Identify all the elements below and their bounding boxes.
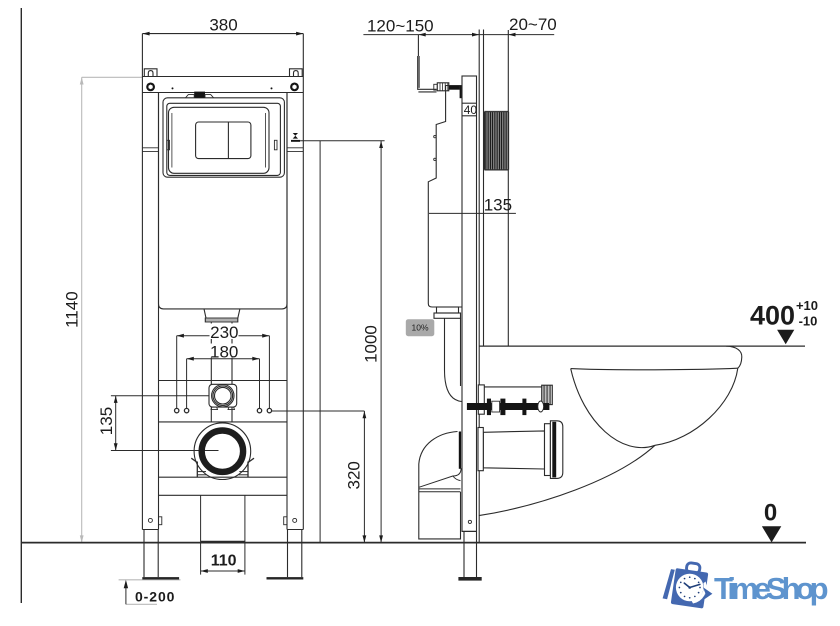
svg-text:40: 40 bbox=[464, 103, 478, 117]
svg-text:400: 400 bbox=[750, 301, 795, 331]
svg-text:135: 135 bbox=[484, 195, 512, 214]
svg-text:-10: -10 bbox=[799, 314, 818, 329]
svg-text:TimeShop: TimeShop bbox=[714, 571, 829, 606]
svg-text:0: 0 bbox=[764, 500, 777, 527]
svg-text:+10: +10 bbox=[796, 298, 818, 313]
svg-text:1000: 1000 bbox=[362, 325, 381, 363]
svg-text:135: 135 bbox=[97, 407, 116, 435]
svg-text:320: 320 bbox=[345, 461, 364, 489]
svg-text:180: 180 bbox=[210, 342, 238, 361]
svg-text:1140: 1140 bbox=[63, 291, 82, 328]
svg-text:230: 230 bbox=[210, 323, 238, 342]
svg-text:120~150: 120~150 bbox=[367, 17, 434, 36]
svg-text:110: 110 bbox=[211, 553, 237, 570]
svg-text:20~70: 20~70 bbox=[509, 15, 557, 34]
svg-text:0-200: 0-200 bbox=[135, 589, 175, 605]
svg-text:10%: 10% bbox=[411, 323, 428, 333]
svg-text:380: 380 bbox=[209, 16, 237, 35]
